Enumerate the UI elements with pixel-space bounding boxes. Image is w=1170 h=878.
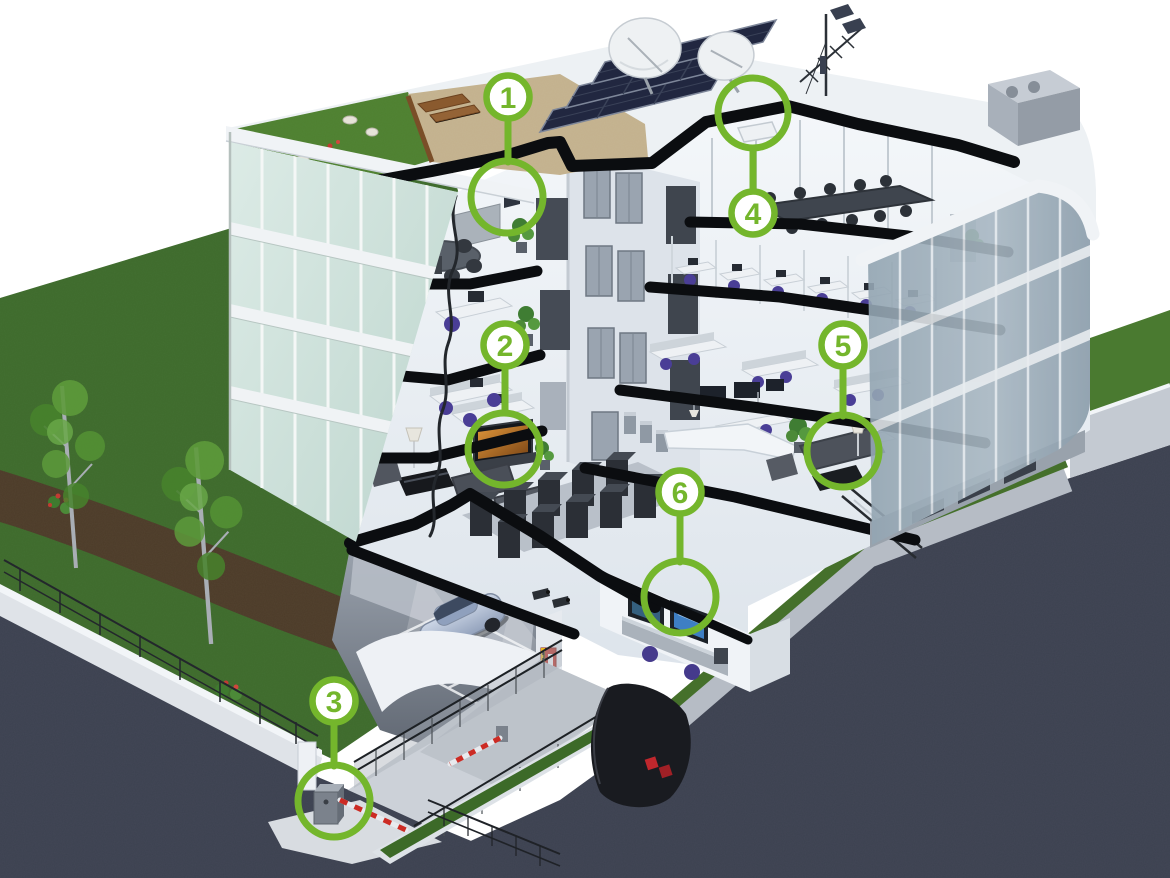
- marker-number: 6: [672, 477, 689, 510]
- cabinet: [540, 382, 566, 430]
- scene-svg: 02 2A 24: [0, 0, 1170, 878]
- operator-chair: [642, 646, 658, 662]
- tall-cabinet: [540, 290, 570, 350]
- marker-number: 4: [745, 198, 762, 231]
- building-cutaway-illustration: 02 2A 24: [0, 0, 1170, 878]
- elevator-core: [568, 150, 700, 505]
- operator-chair: [684, 664, 700, 680]
- marker-number: 3: [326, 686, 343, 719]
- marker-number: 2: [497, 330, 514, 363]
- marker-number: 5: [835, 330, 852, 363]
- monitor: [468, 291, 484, 302]
- marker-number: 1: [500, 82, 517, 115]
- equipment-box: [714, 648, 728, 664]
